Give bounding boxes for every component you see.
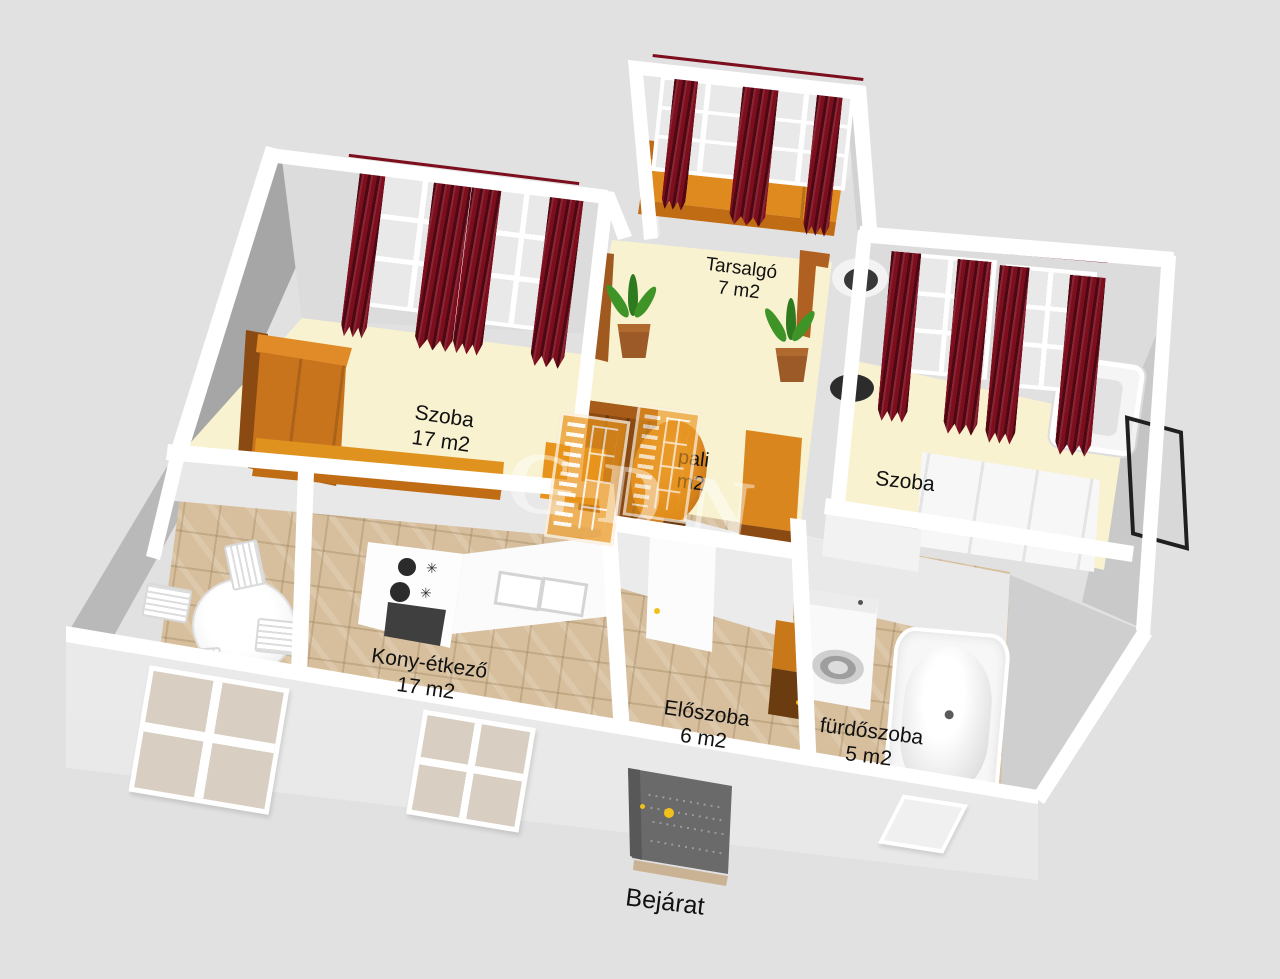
sink-basin bbox=[538, 577, 589, 618]
floorplan-3d-view: Kony-étkező17 m2 ✳ bbox=[0, 0, 1280, 979]
entrance-door-handle bbox=[640, 804, 645, 809]
window bbox=[128, 665, 289, 815]
washing-machine-knob bbox=[858, 600, 863, 605]
plant-pot bbox=[616, 324, 652, 358]
plant-pot bbox=[774, 348, 810, 382]
potted-plant bbox=[606, 272, 664, 364]
window bbox=[406, 709, 536, 832]
sink-basin bbox=[494, 571, 545, 612]
entrance-label: Bejárat bbox=[589, 879, 741, 927]
dining-chair bbox=[141, 582, 192, 623]
stove-burner bbox=[390, 582, 410, 602]
entrance-door-handle bbox=[664, 808, 674, 818]
hob-symbol-icon: ✳ bbox=[420, 585, 432, 602]
door-handle bbox=[654, 608, 660, 614]
stove-burner bbox=[398, 558, 416, 576]
hob-symbol-icon: ✳ bbox=[426, 560, 438, 577]
